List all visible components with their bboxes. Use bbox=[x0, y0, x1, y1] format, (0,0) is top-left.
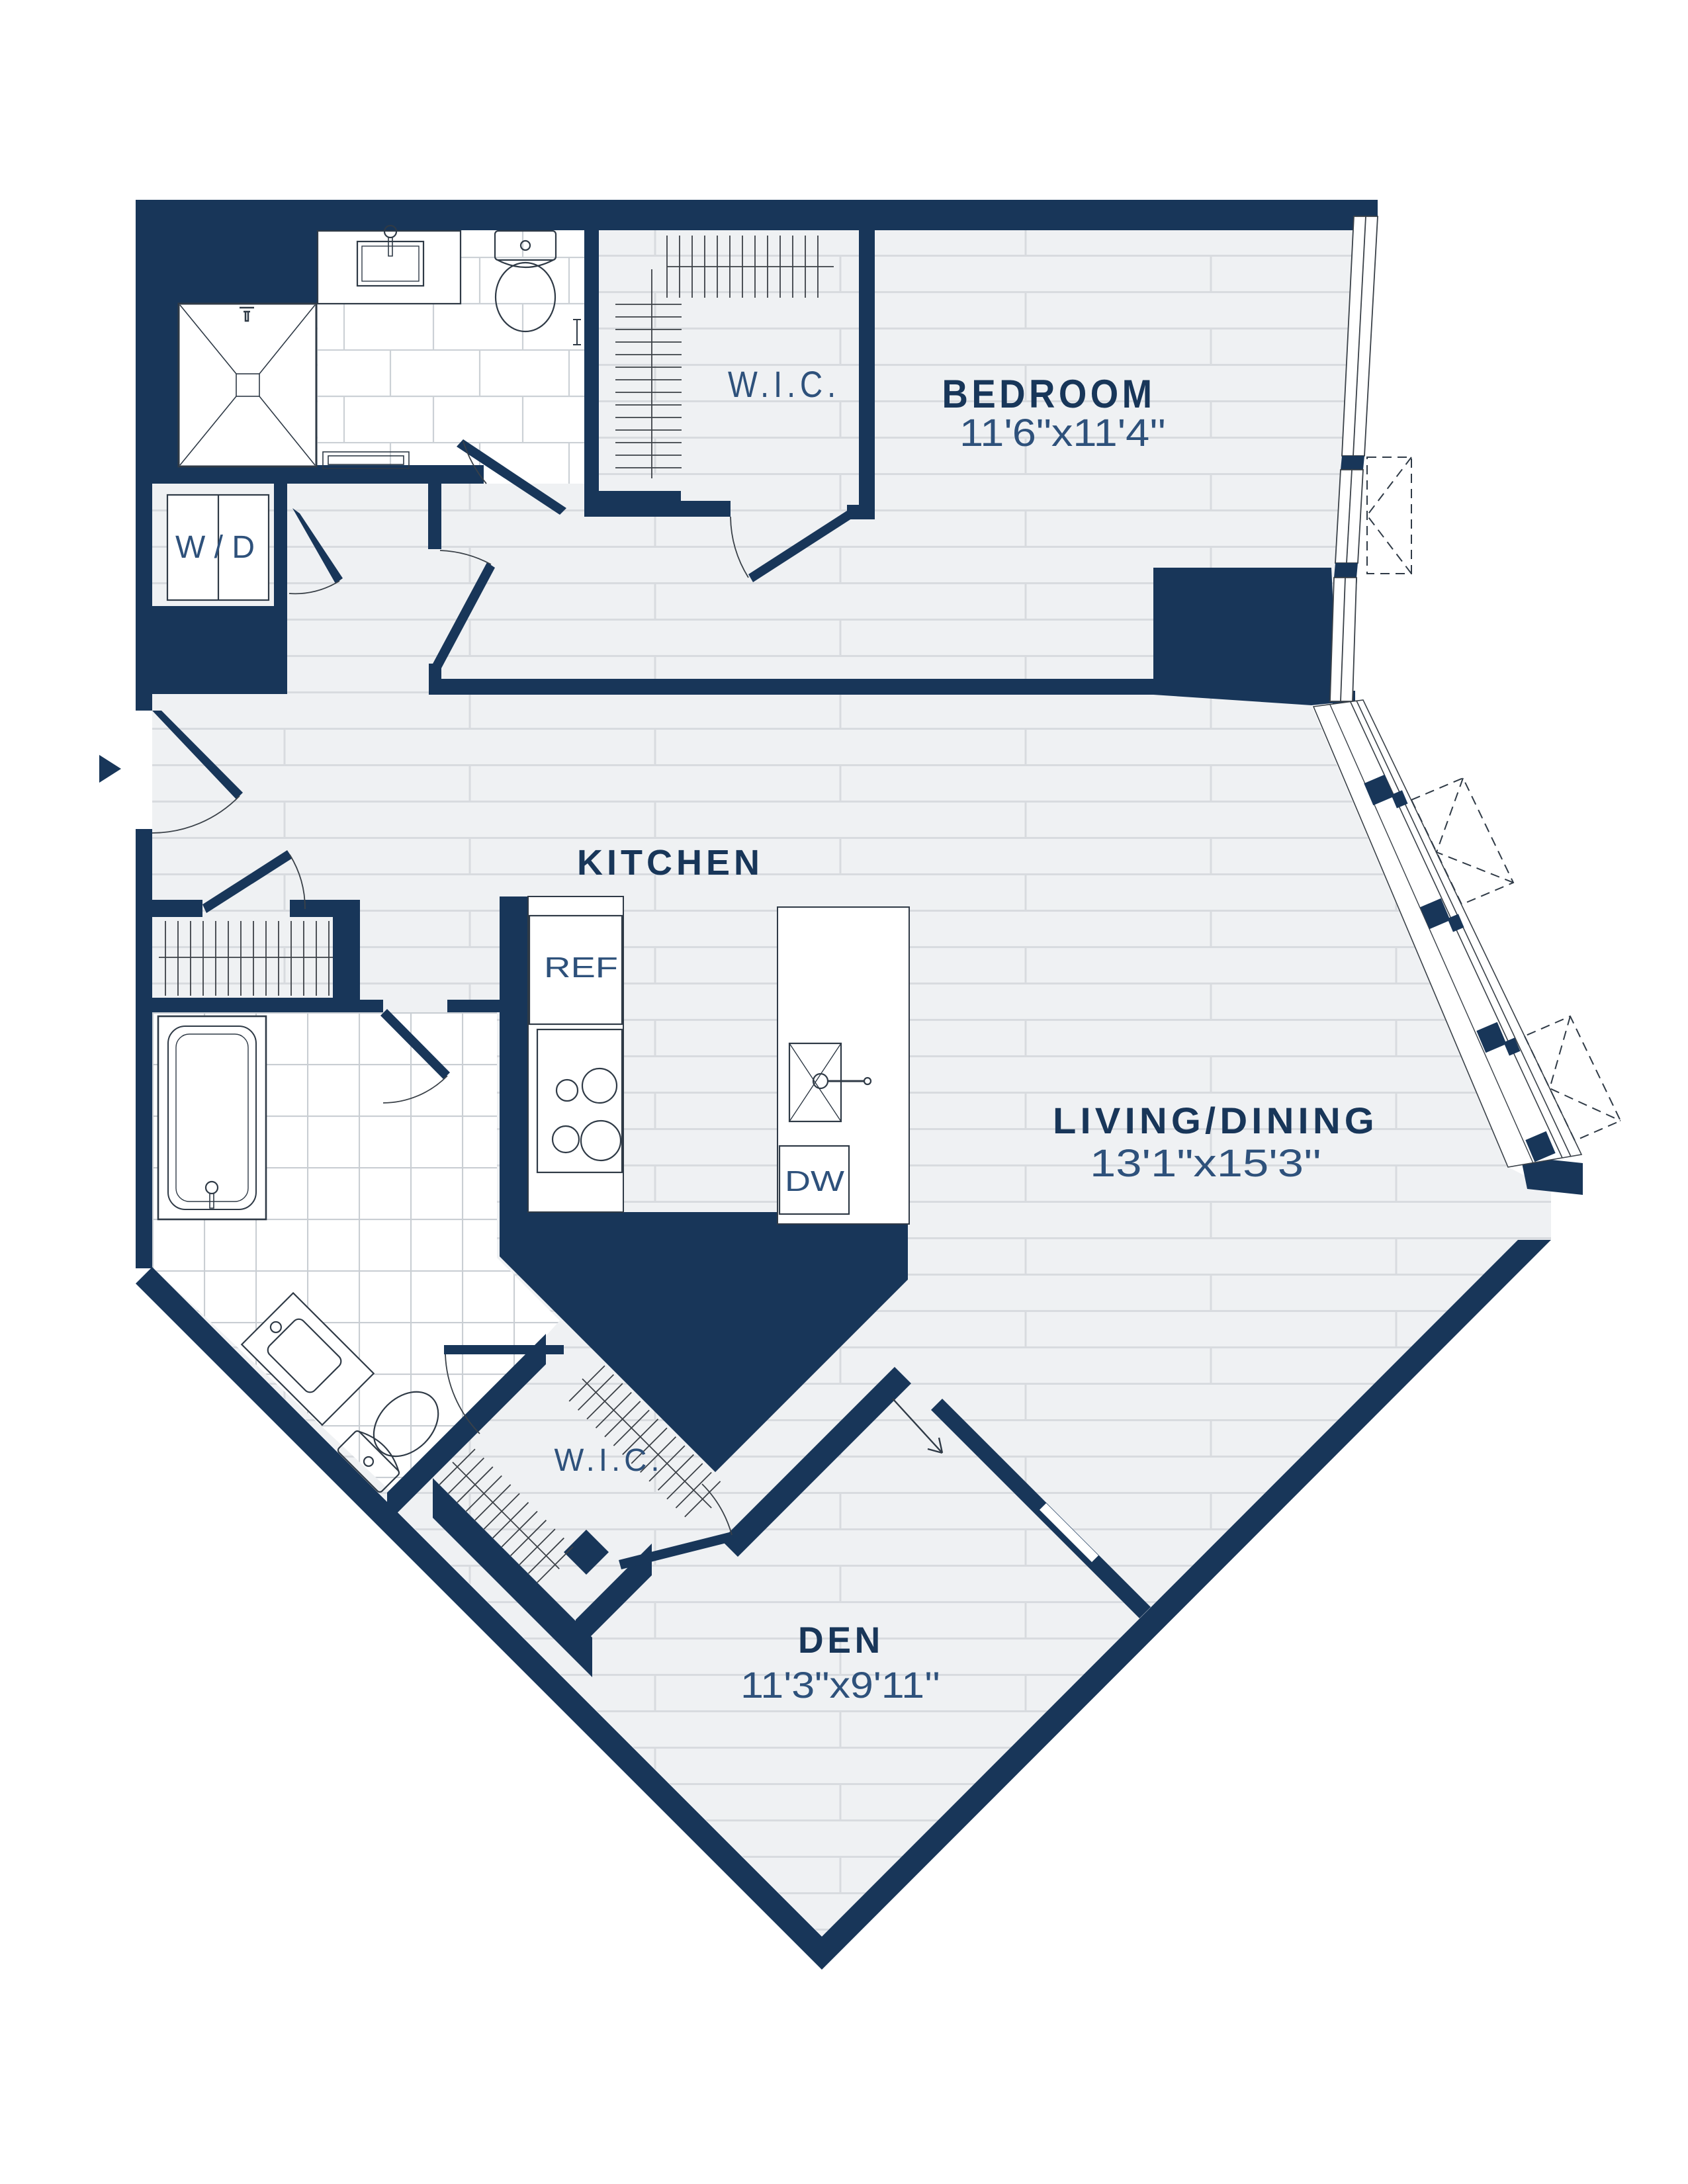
svg-text:DW: DW bbox=[785, 1165, 845, 1198]
svg-text:REF: REF bbox=[544, 951, 618, 984]
svg-text:W / D: W / D bbox=[175, 530, 255, 565]
svg-text:DEN: DEN bbox=[798, 1619, 884, 1661]
svg-text:W.I.C.: W.I.C. bbox=[728, 363, 840, 405]
svg-text:LIVING/DINING: LIVING/DINING bbox=[1053, 1100, 1378, 1141]
svg-text:13'1"x15'3'': 13'1"x15'3'' bbox=[1090, 1142, 1321, 1185]
svg-text:11'6"x11'4'': 11'6"x11'4'' bbox=[959, 412, 1166, 455]
svg-text:W.I.C.: W.I.C. bbox=[555, 1443, 664, 1478]
svg-text:11'3"x9'11'': 11'3"x9'11'' bbox=[740, 1664, 940, 1706]
svg-text:KITCHEN: KITCHEN bbox=[577, 843, 764, 883]
svg-text:BEDROOM: BEDROOM bbox=[942, 372, 1156, 416]
